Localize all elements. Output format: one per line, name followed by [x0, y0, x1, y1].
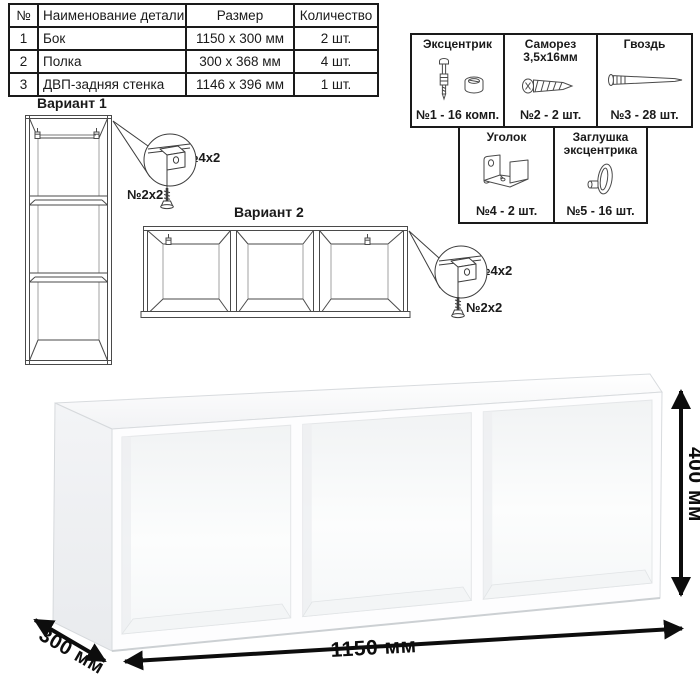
shelf-compartment: [303, 413, 472, 617]
variant1-drawing: [26, 116, 112, 365]
assembly-instruction-page: { "parts_table": { "headers": { "num": "…: [0, 0, 700, 690]
shelf-3d-render: [53, 374, 662, 651]
assembly-drawings: [0, 0, 700, 690]
variant2-callout: [409, 231, 487, 318]
variant1-callout: [113, 121, 196, 209]
shelf-compartment: [483, 400, 652, 599]
shelf-compartment: [122, 425, 291, 634]
variant2-drawing: [141, 227, 410, 318]
